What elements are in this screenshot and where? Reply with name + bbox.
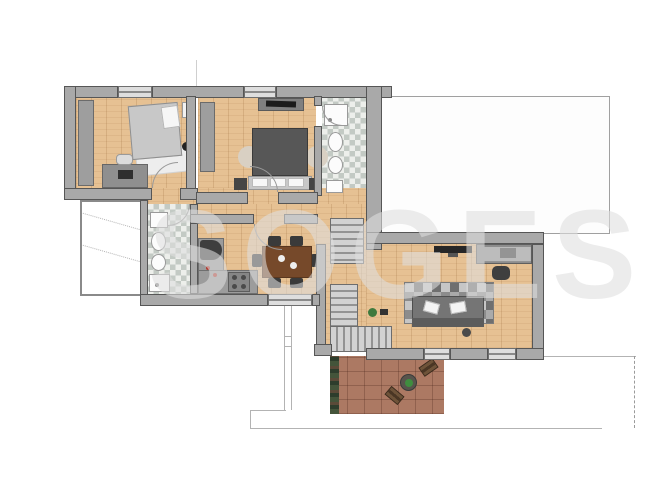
shower-drain [155, 283, 159, 287]
bidet-bathroom-2 [151, 254, 166, 271]
bed-pillow [161, 105, 181, 129]
wall-bedroom1-bottom [64, 188, 152, 200]
wall-bedroom2-bottom [196, 192, 248, 204]
exterior-line [250, 410, 286, 411]
laptop-bedroom-1 [118, 170, 133, 179]
chair-bedroom-1 [116, 154, 133, 165]
sink-bathroom-2 [150, 212, 168, 228]
wall-kitchen-top [190, 214, 254, 224]
window-living-2 [488, 348, 516, 360]
hatch-line [80, 243, 142, 274]
fridge [200, 240, 222, 260]
plant-living [368, 308, 377, 317]
dining-chair [252, 254, 262, 267]
wall-bedroom2-right [314, 126, 322, 196]
wall-kitchen-top [284, 214, 318, 224]
knob-red [206, 266, 210, 270]
toilet-bathroom-1 [328, 132, 343, 152]
bidet-bathroom-1 [328, 156, 343, 174]
burner [232, 284, 237, 289]
wardrobe-bedroom-1 [78, 100, 94, 186]
wall-living-bottom [450, 348, 488, 360]
exterior-line [284, 306, 285, 410]
knob-red [213, 273, 217, 277]
window-kitchen [268, 294, 312, 306]
office-chair [492, 266, 510, 280]
exterior-line [284, 336, 292, 337]
exterior-boundary-bottom [250, 428, 602, 429]
adjacent-space [80, 200, 142, 296]
wall-bathroom2-left [140, 200, 148, 306]
wall-bedroom2-bottom [278, 192, 318, 204]
exterior-line [291, 306, 292, 410]
staircase-upper [330, 218, 364, 264]
shower-bathroom-2 [149, 274, 170, 292]
wall-left [64, 86, 76, 200]
side-table-living [462, 328, 471, 337]
wall-bedroom2-right [314, 96, 322, 106]
exterior-cutout [376, 96, 610, 234]
basket-living [380, 309, 388, 315]
burner [232, 275, 237, 280]
hatch-line [80, 211, 142, 242]
toilet-bathroom-2 [151, 232, 166, 251]
wardrobe-bedroom-2 [200, 102, 215, 172]
wall-bedroom-divider [186, 96, 196, 190]
wall-bathroom1-right [366, 86, 382, 250]
staircase-lower-vertical [330, 284, 358, 330]
wall-living-right [532, 244, 544, 360]
plate [290, 262, 297, 269]
wall-top [152, 86, 244, 98]
wall-tv [434, 246, 472, 253]
exterior-line [284, 346, 292, 347]
tv-stand [448, 253, 458, 257]
dining-table [262, 246, 312, 278]
laptop-living [500, 248, 516, 258]
wall-living-bottom [366, 348, 424, 360]
tick-mark-top [196, 60, 197, 88]
burner [241, 275, 246, 280]
plate [278, 255, 285, 262]
exterior-line [544, 356, 636, 357]
burner [241, 284, 246, 289]
dining-chair [290, 236, 303, 246]
sofa-backrest [412, 318, 484, 327]
floor-plan-canvas: SOGES [0, 0, 672, 504]
window-bedroom-1 [118, 86, 152, 98]
bed-pillow [288, 178, 304, 187]
dining-chair [290, 278, 303, 288]
exterior-line [250, 410, 251, 428]
wall-living-bottom [516, 348, 544, 360]
stove [228, 272, 250, 292]
wall-terrace-stub [314, 344, 332, 356]
nightstand-left [234, 178, 247, 190]
tv-bedroom-2 [266, 100, 296, 107]
dining-chair [268, 278, 281, 288]
wall-kitchen-bottom [312, 294, 320, 306]
wall-kitchen-bottom [140, 294, 268, 306]
terrace-plant [405, 379, 413, 387]
window-bedroom-2 [244, 86, 276, 98]
terrace-planter-strip [330, 356, 339, 414]
sink-bathroom-1 [326, 180, 343, 193]
boundary-dashed [634, 356, 635, 428]
window-living-1 [424, 348, 450, 360]
wall-living-top [366, 232, 544, 244]
